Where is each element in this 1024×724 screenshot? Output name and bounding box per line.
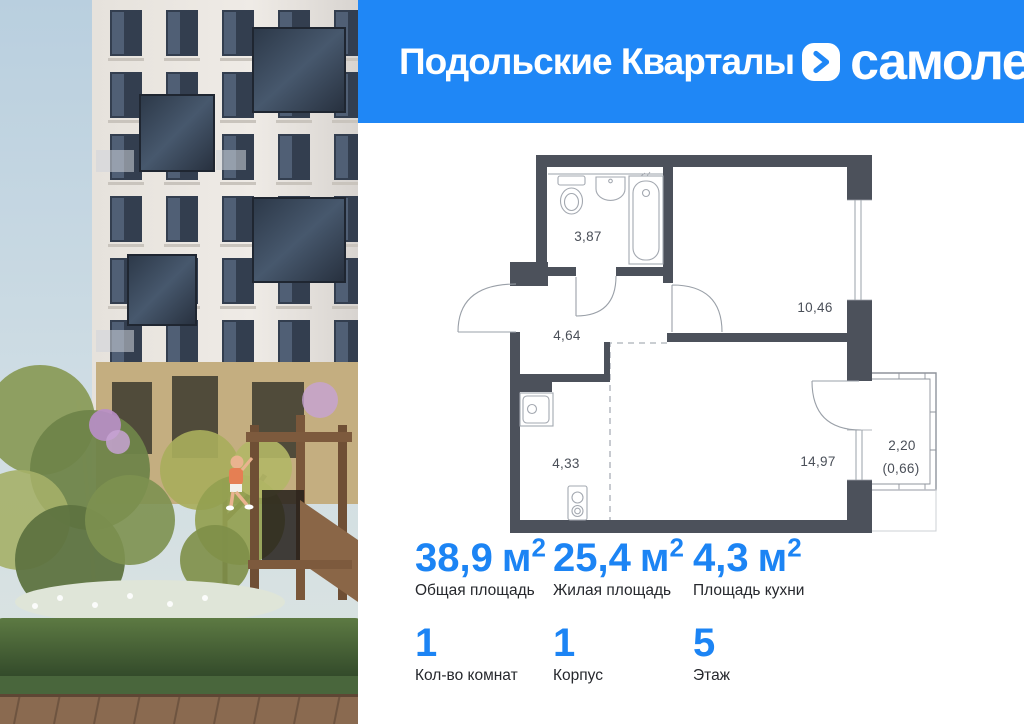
walls xyxy=(510,155,872,533)
kitchen-sink-icon xyxy=(520,393,553,426)
area-label-bedroom: 10,46 xyxy=(797,300,832,315)
stat-rooms-count-value: 1 xyxy=(415,626,565,660)
bathtub-icon xyxy=(629,172,663,264)
brand-name: самолет xyxy=(850,36,1024,88)
bathroom-sink-icon xyxy=(596,177,625,200)
walkway xyxy=(0,694,358,724)
stat-kitchen-area-value: 4,3м2 xyxy=(693,541,843,575)
stove-icon xyxy=(568,486,587,520)
area-label-living-room: 14,97 xyxy=(800,454,835,469)
hedge xyxy=(0,618,358,682)
stat-living-area-value: 25,4м2 xyxy=(553,541,703,575)
stat-total-area-value: 38,9м2 xyxy=(415,541,565,575)
balcony-door xyxy=(812,381,861,430)
flower-bed xyxy=(15,580,285,624)
floor-plan: 3,87 4,64 10,46 4,33 14,97 2,20 (0,66) xyxy=(440,130,1024,540)
courtyard-photo-art xyxy=(0,0,358,724)
area-label-hallway: 4,64 xyxy=(553,328,581,343)
bathroom-door xyxy=(576,276,616,316)
area-label-bathroom: 3,87 xyxy=(574,229,601,244)
stat-total-area-label: Общая площадь xyxy=(415,582,565,600)
area-label-balcony-weighted: (0,66) xyxy=(882,461,919,476)
stat-rooms-count: 1 Кол-во комнат xyxy=(415,626,565,685)
stat-living-area-label: Жилая площадь xyxy=(553,582,703,600)
samolet-logo: самолет xyxy=(802,36,1024,88)
bedroom-door xyxy=(672,285,722,332)
stat-floor-value: 5 xyxy=(693,626,843,660)
area-label-kitchen: 4,33 xyxy=(552,456,579,471)
entrance-door xyxy=(458,284,516,332)
courtyard-photo xyxy=(0,0,358,724)
stat-building: 1 Корпус xyxy=(553,626,703,685)
stat-kitchen-area: 4,3м2 Площадь кухни xyxy=(693,541,843,600)
stat-total-area: 38,9м2 Общая площадь xyxy=(415,541,565,600)
samolet-chevron-icon xyxy=(802,43,840,81)
stat-building-value: 1 xyxy=(553,626,703,660)
zone-divider-dashed xyxy=(610,343,667,521)
adjacent-balcony-ghost xyxy=(872,490,936,531)
stat-floor-label: Этаж xyxy=(693,667,843,685)
stat-building-label: Корпус xyxy=(553,667,703,685)
stat-living-area: 25,4м2 Жилая площадь xyxy=(553,541,703,600)
listing-card: Подольские Кварталы самолет xyxy=(0,0,1024,724)
project-title: Подольские Кварталы xyxy=(399,41,794,83)
stat-kitchen-area-label: Площадь кухни xyxy=(693,582,843,600)
area-label-balcony: 2,20 xyxy=(888,438,915,453)
header-banner: Подольские Кварталы самолет xyxy=(358,0,1024,123)
stat-rooms-count-label: Кол-во комнат xyxy=(415,667,565,685)
toilet-icon xyxy=(558,176,585,214)
stat-floor: 5 Этаж xyxy=(693,626,843,685)
